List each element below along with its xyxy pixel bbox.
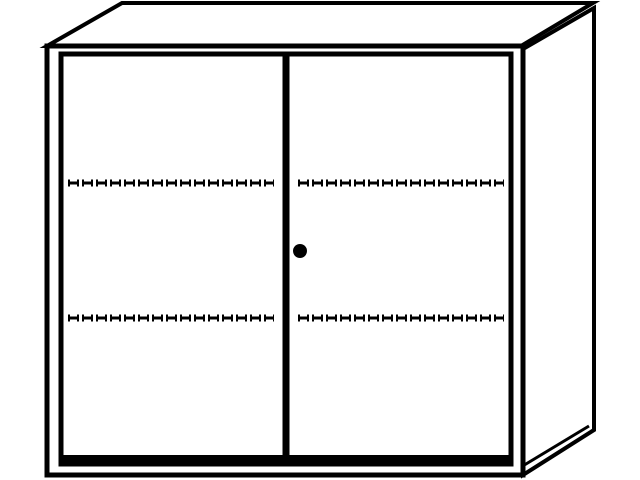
lock-knob xyxy=(293,244,307,258)
cabinet-drawing xyxy=(0,0,640,480)
cabinet-side-panel xyxy=(523,8,594,475)
cabinet-top-face xyxy=(47,3,593,46)
cabinet-illustration xyxy=(0,0,640,480)
